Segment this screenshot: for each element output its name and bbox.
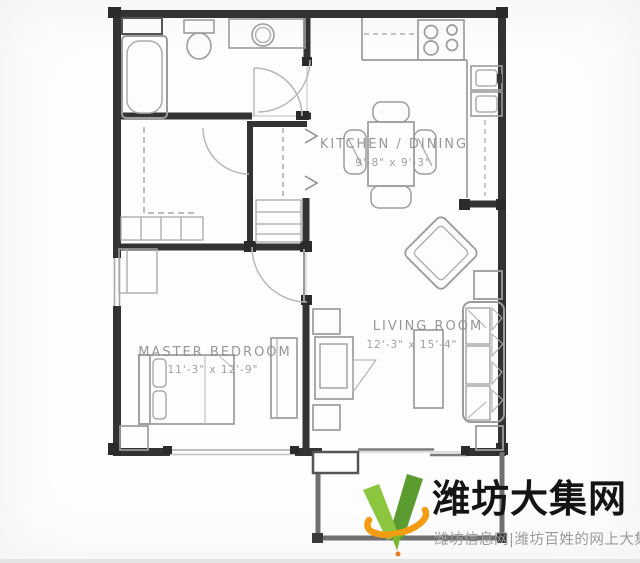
walkin-closet-door [203, 128, 249, 174]
logo-dot [396, 552, 401, 557]
nightstand [120, 426, 148, 450]
site-logo-icon [363, 474, 429, 558]
stove [418, 20, 464, 60]
wall-opening-lines [252, 62, 466, 452]
linen-shelf [122, 18, 162, 34]
pantry-shelves [256, 200, 301, 242]
bathtub [122, 36, 167, 118]
toilet [184, 20, 214, 59]
kitchen-dims: 9'-8" x 9'-3" [355, 157, 431, 169]
living-room-dims: 12'-3" x 15'-4" [367, 339, 458, 351]
bedroom-door [252, 247, 307, 302]
tv [320, 344, 347, 388]
speaker-lower [313, 405, 340, 430]
site-watermark: 潍坊大集网 潍坊信息网|潍坊百姓的网上大集 [356, 468, 640, 558]
master-bedroom-dims: 11'-3" x 12'-9" [168, 364, 259, 376]
headboard [139, 355, 150, 424]
bathroom-vanity [229, 19, 305, 48]
closets [121, 127, 317, 242]
bathroom [122, 18, 305, 118]
side-table-upper [474, 271, 502, 299]
kitchen-label: KITCHEN / DINING [320, 137, 468, 152]
patio-storage [313, 452, 358, 473]
pillow-1 [153, 359, 166, 387]
armchair [403, 215, 479, 291]
speaker-upper [313, 309, 340, 334]
dining-chairs [344, 102, 436, 208]
dining-table [368, 122, 414, 186]
bedroom-bottom-window [168, 450, 297, 455]
entry-hall-door [258, 60, 310, 112]
bifold-door-chevrons [305, 129, 317, 190]
linen-shelves [121, 217, 203, 240]
kitchen [344, 18, 502, 208]
window-seat [119, 249, 157, 293]
pillow-2 [153, 391, 166, 419]
logo-v-tip [392, 535, 401, 551]
door-swings [203, 60, 310, 302]
site-title: 潍坊大集网 [432, 480, 627, 518]
living-room-label: LIVING ROOM [373, 319, 483, 334]
site-tagline: 潍坊信息网|潍坊百姓的网上大集 [434, 528, 640, 549]
kitchen-sink [471, 66, 502, 116]
walkin-closet-rod [144, 127, 197, 213]
scan-edge-strip [0, 559, 640, 563]
faucet [497, 74, 502, 83]
master-bedroom-label: MASTER BEDROOM [138, 345, 292, 360]
